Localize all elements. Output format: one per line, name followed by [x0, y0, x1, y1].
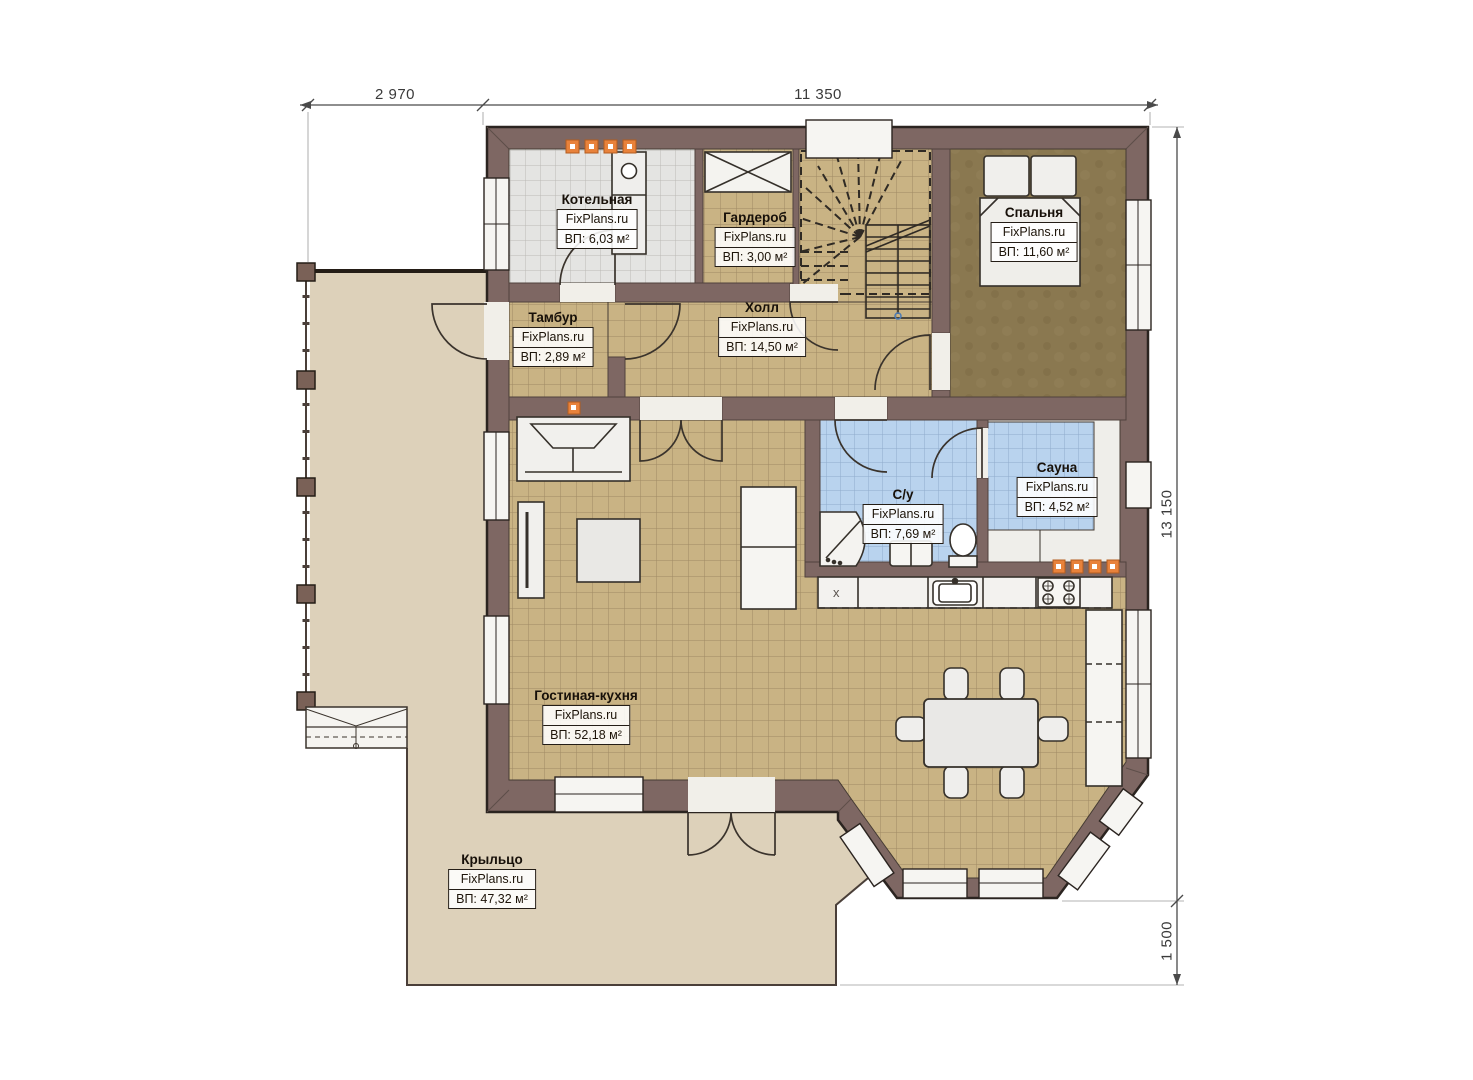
watermark: FixPlans.ru [719, 318, 805, 338]
room-name: Холл [718, 300, 806, 315]
room-area: ВП: 47,32 м² [449, 890, 535, 909]
room-name: Тамбур [513, 310, 594, 325]
room-name: Спальня [991, 205, 1078, 220]
coffee-table [577, 519, 640, 582]
room-area: ВП: 11,60 м² [992, 243, 1077, 262]
watermark: FixPlans.ru [558, 210, 637, 230]
room-name: Гардероб [715, 210, 796, 225]
room-label-tambur: Тамбур FixPlans.ru ВП: 2,89 м² [513, 310, 594, 367]
watermark: FixPlans.ru [864, 505, 943, 525]
tv-console [518, 502, 544, 598]
toilet [949, 524, 977, 567]
dimension-top-left: 2 970 [375, 86, 415, 103]
room-label-sanuzel: С/у FixPlans.ru ВП: 7,69 м² [863, 487, 944, 544]
watermark: FixPlans.ru [1018, 478, 1097, 498]
floor-plan-graphics [0, 0, 1473, 1080]
room-name: С/у [863, 487, 944, 502]
room-label-garderob: Гардероб FixPlans.ru ВП: 3,00 м² [715, 210, 796, 267]
fireplace [517, 417, 630, 481]
watermark: FixPlans.ru [992, 223, 1077, 243]
room-label-gostinaya-kukhnya: Гостиная-кухня FixPlans.ru ВП: 52,18 м² [534, 688, 637, 745]
room-label-kotelnaya: Котельная FixPlans.ru ВП: 6,03 м² [557, 192, 638, 249]
room-label-kholl: Холл FixPlans.ru ВП: 14,50 м² [718, 300, 806, 357]
room-area: ВП: 7,69 м² [864, 525, 943, 544]
watermark: FixPlans.ru [514, 328, 593, 348]
room-area: ВП: 2,89 м² [514, 348, 593, 367]
room-area: ВП: 3,00 м² [716, 248, 795, 267]
room-area: ВП: 6,03 м² [558, 230, 637, 249]
floor-plan: 2 970 11 350 13 150 1 500 x Котельная Fi… [0, 0, 1473, 1080]
room-name: Крыльцо [448, 852, 536, 867]
watermark: FixPlans.ru [449, 870, 535, 890]
room-label-kryltso: Крыльцо FixPlans.ru ВП: 47,32 м² [448, 852, 536, 909]
side-cabinets [1086, 610, 1122, 786]
room-label-sauna: Сауна FixPlans.ru ВП: 4,52 м² [1017, 460, 1098, 517]
room-area: ВП: 14,50 м² [719, 338, 805, 357]
room-area: ВП: 4,52 м² [1018, 498, 1097, 517]
shower [820, 512, 865, 566]
dishwasher-marker: x [833, 585, 840, 600]
room-name: Котельная [557, 192, 638, 207]
stove [1038, 578, 1080, 607]
room-name: Гостиная-кухня [534, 688, 637, 703]
wardrobe-cabinet [705, 152, 791, 192]
fridge [741, 487, 796, 609]
room-label-spalnya: Спальня FixPlans.ru ВП: 11,60 м² [991, 205, 1078, 262]
washbasin [890, 541, 932, 566]
room-name: Сауна [1017, 460, 1098, 475]
watermark: FixPlans.ru [543, 706, 629, 726]
dimension-right: 13 150 [1159, 490, 1176, 539]
dimension-right-bottom: 1 500 [1159, 921, 1176, 961]
watermark: FixPlans.ru [716, 228, 795, 248]
kitchen-sink [933, 579, 977, 606]
entry-steps [306, 707, 407, 749]
room-area: ВП: 52,18 м² [543, 726, 629, 745]
dimension-top-right: 11 350 [794, 86, 842, 103]
